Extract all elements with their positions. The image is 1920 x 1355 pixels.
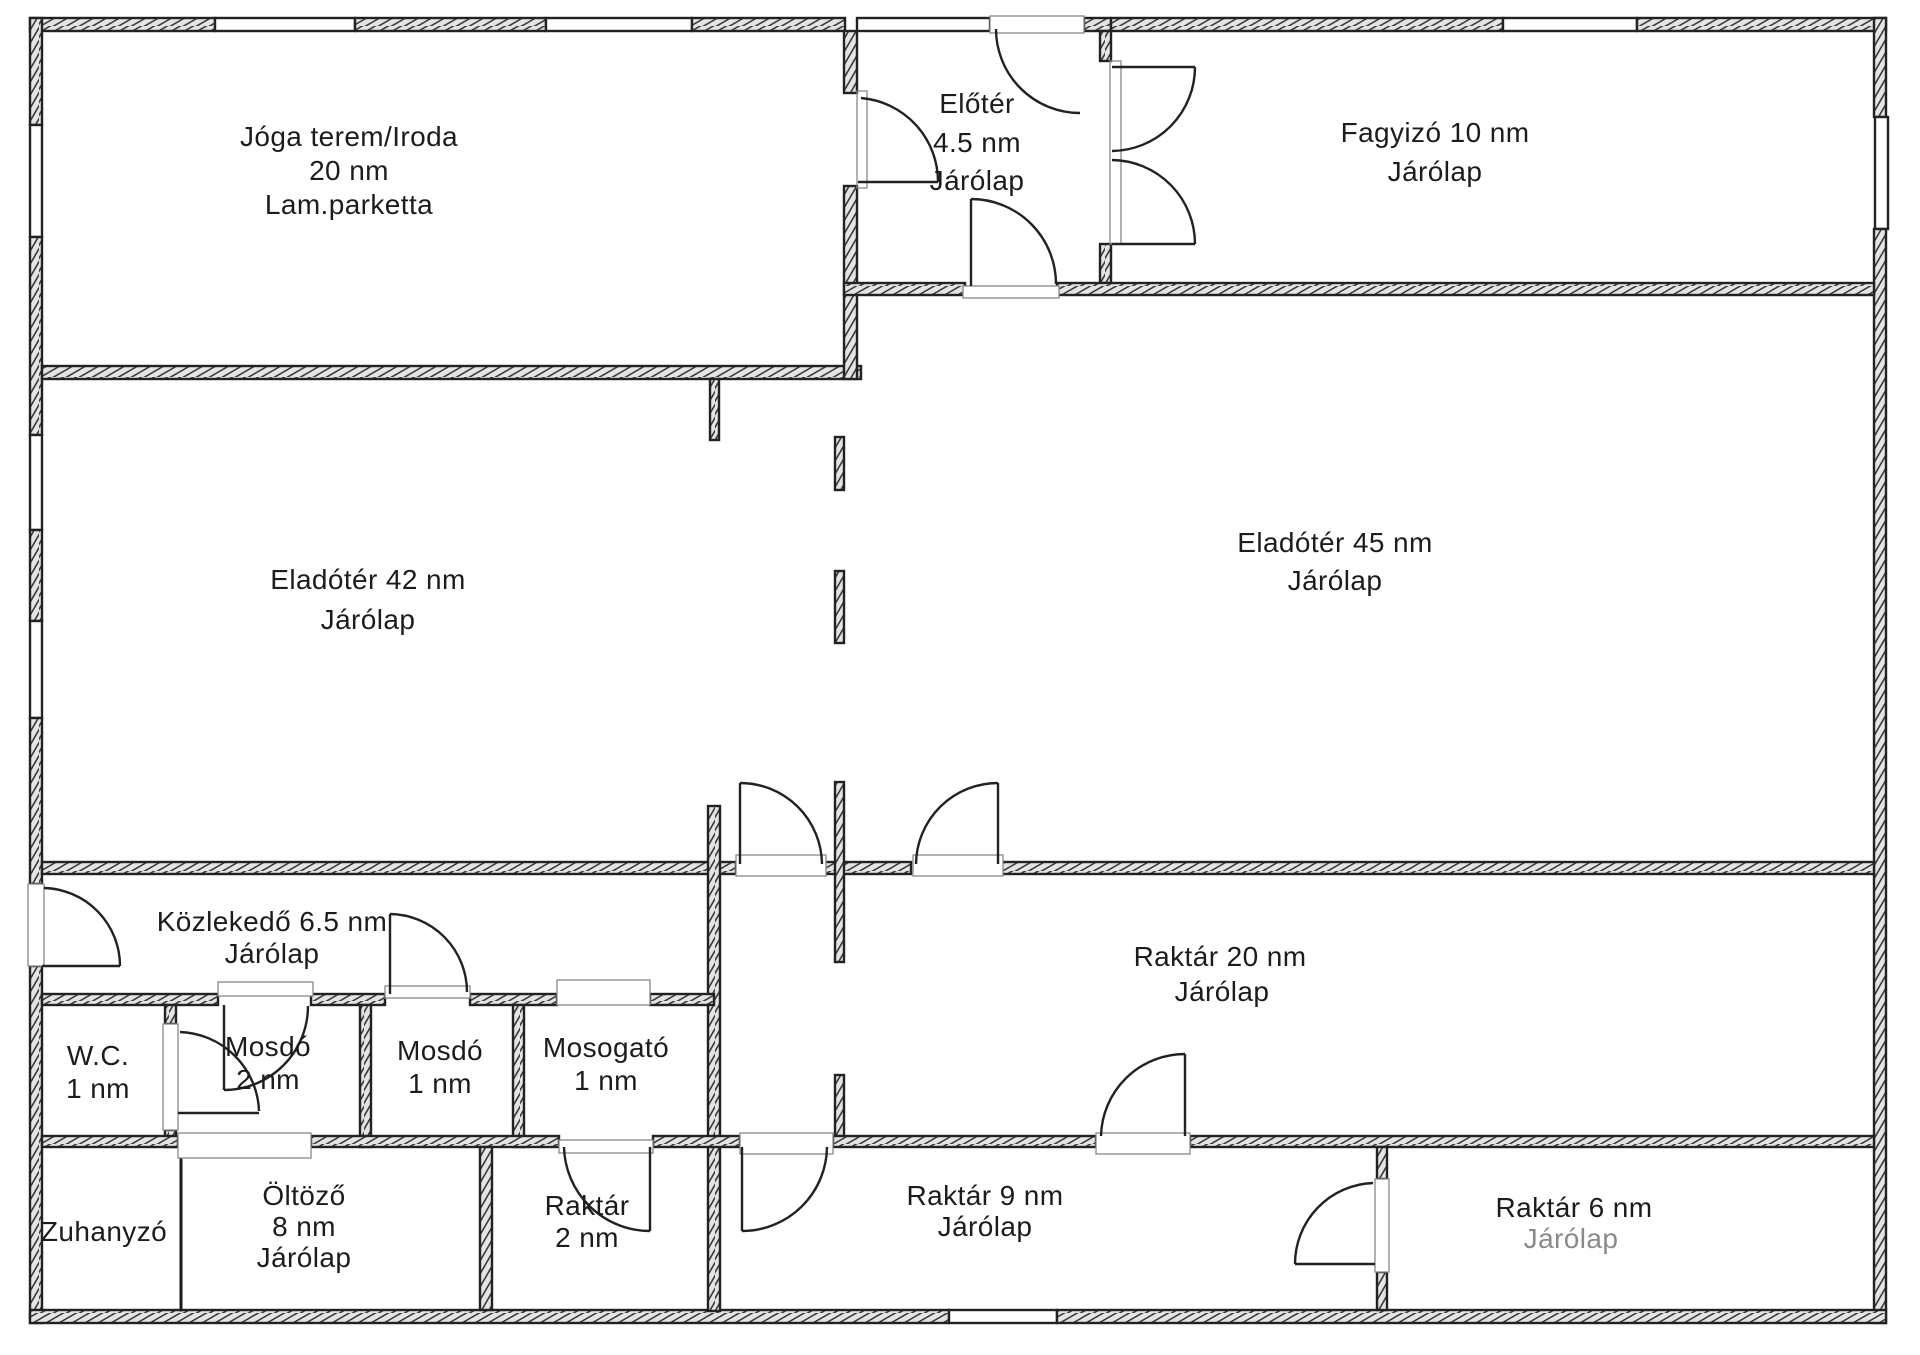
svg-text:1 nm: 1 nm: [408, 1068, 472, 1099]
svg-text:Zuhanyzó: Zuhanyzó: [41, 1216, 167, 1247]
svg-text:Mosdó: Mosdó: [225, 1031, 311, 1062]
svg-text:Raktár: Raktár: [545, 1190, 630, 1221]
svg-text:Járólap: Járólap: [1288, 565, 1383, 596]
svg-text:Mosdó: Mosdó: [397, 1035, 483, 1066]
svg-text:Járólap: Járólap: [257, 1242, 352, 1273]
svg-text:Öltöző: Öltöző: [262, 1180, 345, 1211]
svg-text:Járólap: Járólap: [930, 165, 1025, 196]
svg-text:Raktár 6 nm: Raktár 6 nm: [1496, 1192, 1653, 1223]
svg-text:Járólap: Járólap: [321, 604, 416, 635]
svg-text:Raktár 9 nm: Raktár 9 nm: [907, 1180, 1064, 1211]
svg-text:Fagyizó 10 nm: Fagyizó 10 nm: [1341, 117, 1530, 148]
svg-text:2 nm: 2 nm: [555, 1222, 619, 1253]
svg-text:W.C.: W.C.: [67, 1040, 129, 1071]
svg-text:Előtér: Előtér: [939, 88, 1015, 119]
svg-text:1 nm: 1 nm: [574, 1065, 638, 1096]
svg-text:Eladótér 45 nm: Eladótér 45 nm: [1237, 527, 1433, 558]
svg-text:Jóga terem/Iroda: Jóga terem/Iroda: [240, 121, 458, 152]
svg-text:8 nm: 8 nm: [272, 1211, 336, 1242]
svg-text:Járólap: Járólap: [1175, 976, 1270, 1007]
svg-text:Közlekedő 6.5 nm: Közlekedő 6.5 nm: [157, 906, 388, 937]
svg-text:1 nm: 1 nm: [66, 1073, 130, 1104]
svg-text:4.5 nm: 4.5 nm: [933, 127, 1021, 158]
svg-text:2 nm: 2 nm: [236, 1064, 300, 1095]
svg-text:Járólap: Járólap: [1388, 156, 1483, 187]
svg-text:Járólap: Járólap: [225, 938, 320, 969]
svg-text:20 nm: 20 nm: [309, 155, 389, 186]
svg-text:Járólap: Járólap: [1524, 1223, 1619, 1254]
svg-text:Lam.parketta: Lam.parketta: [265, 189, 433, 220]
svg-text:Eladótér 42 nm: Eladótér 42 nm: [270, 564, 466, 595]
svg-text:Mosogató: Mosogató: [543, 1032, 669, 1063]
svg-text:Raktár 20 nm: Raktár 20 nm: [1134, 941, 1307, 972]
svg-text:Járólap: Járólap: [938, 1211, 1033, 1242]
